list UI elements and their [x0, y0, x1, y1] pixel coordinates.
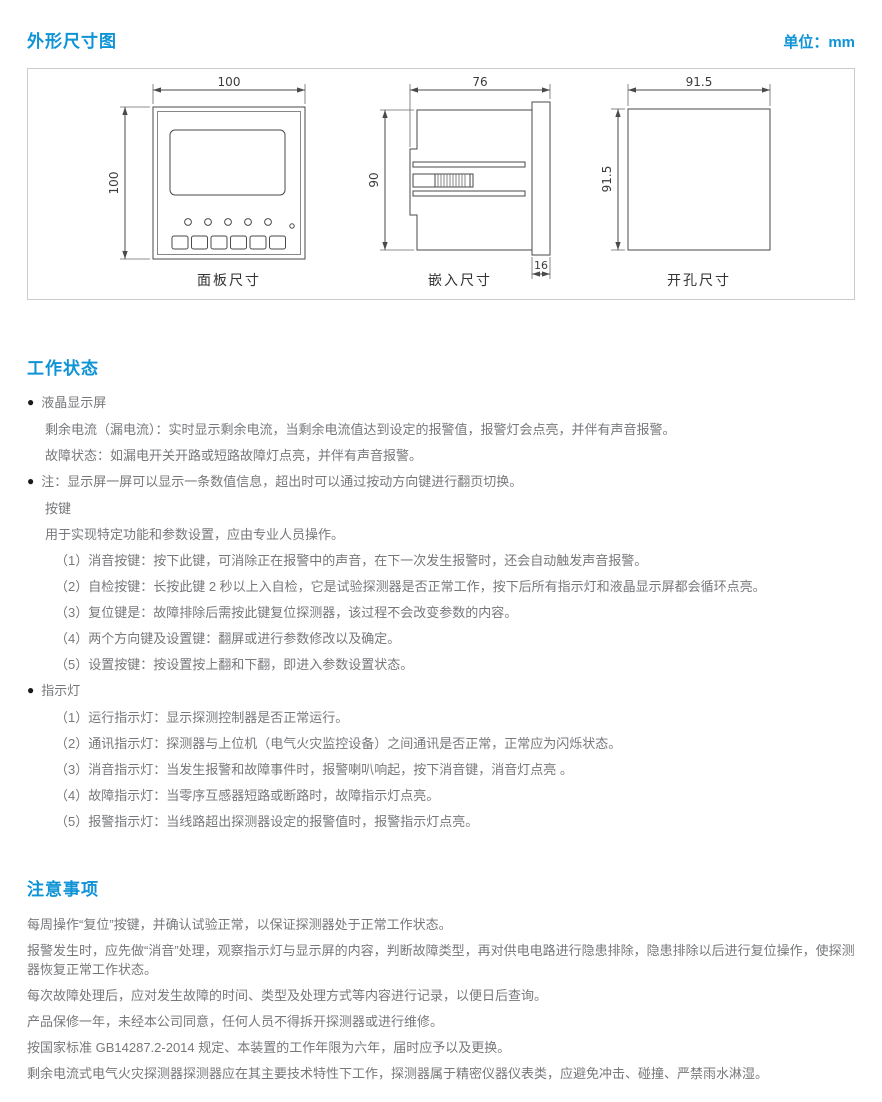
working-status-section: 工作状态 ●液晶显示屏 剩余电流（漏电流）：实时显示剩余电流，当剩余电流值达到设… [27, 358, 855, 831]
dimension-drawings: 100 100 面板尺寸 [28, 69, 854, 299]
button-item: （5）设置按键：按设置按上翻和下翻，即进入参数设置状态。 [55, 655, 855, 674]
indicator-item: （2）通讯指示灯：探测器与上位机（电气火灾监控设备）之间通讯是否正常，正常应为闪… [55, 734, 855, 753]
button-item: （2）自检按键：长按此键 2 秒以上入自检，它是试验探测器是否正常工作，按下后所… [55, 577, 855, 596]
button-item: （1）消音按键：按下此键，可消除正在报警中的声音，在下一次发生报警时，还会自动触… [55, 551, 855, 570]
list-item-lcd: ●液晶显示屏 [27, 393, 855, 413]
side-embed-view-drawing: 76 90 16 嵌入尺寸 [367, 75, 550, 288]
precaution-paragraph: 剩余电流式电气火灾探测器探测器应在其主要技术特性下工作，探测器属于精密仪器仪表类… [27, 1064, 855, 1083]
precautions-section: 注意事项 每周操作“复位”按键，并确认试验正常，以保证探测器处于正常工作状态。 … [27, 879, 855, 1083]
list-item-indicators: ●指示灯 [27, 681, 855, 701]
precautions-body: 每周操作“复位”按键，并确认试验正常，以保证探测器处于正常工作状态。 报警发生时… [27, 915, 855, 1083]
dimensions-section-title: 外形尺寸图 [27, 27, 117, 52]
dimension-diagram-box: 100 100 面板尺寸 [27, 68, 855, 300]
precaution-paragraph: 每次故障处理后，应对发生故障的时间、类型及处理方式等内容进行记录，以便日后查询。 [27, 986, 855, 1005]
manual-page: 外形尺寸图 单位：mm [0, 0, 882, 1102]
list-item-text: 注：显示屏一屏可以显示一条数值信息，超出时可以通过按动方向键进行翻页切换。 [41, 474, 522, 489]
panel-height-dim: 100 [107, 172, 121, 195]
side-depth-dim: 16 [534, 259, 548, 272]
cutout-caption: 开孔尺寸 [667, 272, 731, 288]
lcd-screen-shape [170, 130, 285, 195]
button-item: （3）复位键是：故障排除后需按此键复位探测器，该过程不会改变参数的内容。 [55, 603, 855, 622]
buttons-subtitle: 按键 [45, 499, 855, 518]
cutout-view-drawing: 91.5 91.5 开孔尺寸 [600, 75, 770, 288]
precaution-paragraph: 报警发生时，应先做“消音”处理，观察指示灯与显示屏的内容，判断故障类型，再对供电… [27, 941, 855, 979]
panel-caption: 面板尺寸 [197, 272, 261, 288]
side-width-dim: 76 [472, 75, 487, 89]
buttons-intro: 用于实现特定功能和参数设置，应由专业人员操作。 [45, 525, 855, 544]
bullet-icon: ● [27, 683, 34, 697]
cutout-height-dim: 91.5 [600, 166, 614, 193]
indicator-item: （4）故障指示灯：当零序互感器短路或断路时，故障指示灯点亮。 [55, 786, 855, 805]
working-status-body: ●液晶显示屏 剩余电流（漏电流）：实时显示剩余电流，当剩余电流值达到设定的报警值… [27, 393, 855, 831]
cutout-width-dim: 91.5 [686, 75, 713, 89]
unit-label: 单位：mm [783, 31, 855, 52]
panel-width-dim: 100 [218, 75, 241, 89]
list-item-note: ●注：显示屏一屏可以显示一条数值信息，超出时可以通过按动方向键进行翻页切换。 [27, 472, 855, 492]
lcd-detail-line: 故障状态：如漏电开关开路或短路故障灯点亮，并伴有声音报警。 [45, 446, 855, 465]
bullet-icon: ● [27, 474, 34, 488]
precaution-paragraph: 按国家标准 GB14287.2-2014 规定、本装置的工作年限为六年，届时应予… [27, 1038, 855, 1057]
precaution-paragraph: 每周操作“复位”按键，并确认试验正常，以保证探测器处于正常工作状态。 [27, 915, 855, 934]
side-caption: 嵌入尺寸 [428, 272, 492, 288]
bullet-icon: ● [27, 395, 34, 409]
button-item: （4）两个方向键及设置键：翻屏或进行参数修改以及确定。 [55, 629, 855, 648]
precaution-paragraph: 产品保修一年，未经本公司同意，任何人员不得拆开探测器或进行维修。 [27, 1012, 855, 1031]
page-header: 外形尺寸图 单位：mm [27, 0, 855, 52]
indicator-item: （5）报警指示灯：当线路超出探测器设定的报警值时，报警指示灯点亮。 [55, 812, 855, 831]
lcd-detail-line: 剩余电流（漏电流）：实时显示剩余电流，当剩余电流值达到设定的报警值，报警灯会点亮… [45, 420, 855, 439]
working-status-heading: 工作状态 [27, 358, 855, 380]
indicator-item: （1）运行指示灯：显示探测控制器是否正常运行。 [55, 708, 855, 727]
list-item-text: 指示灯 [41, 683, 80, 698]
list-item-text: 液晶显示屏 [41, 395, 106, 410]
panel-front-view-drawing: 100 100 面板尺寸 [107, 75, 305, 288]
indicator-item: （3）消音指示灯：当发生报警和故障事件时，报警喇叭响起，按下消音键，消音灯点亮 … [55, 760, 855, 779]
precautions-heading: 注意事项 [27, 879, 855, 901]
side-height-dim: 90 [367, 172, 381, 187]
